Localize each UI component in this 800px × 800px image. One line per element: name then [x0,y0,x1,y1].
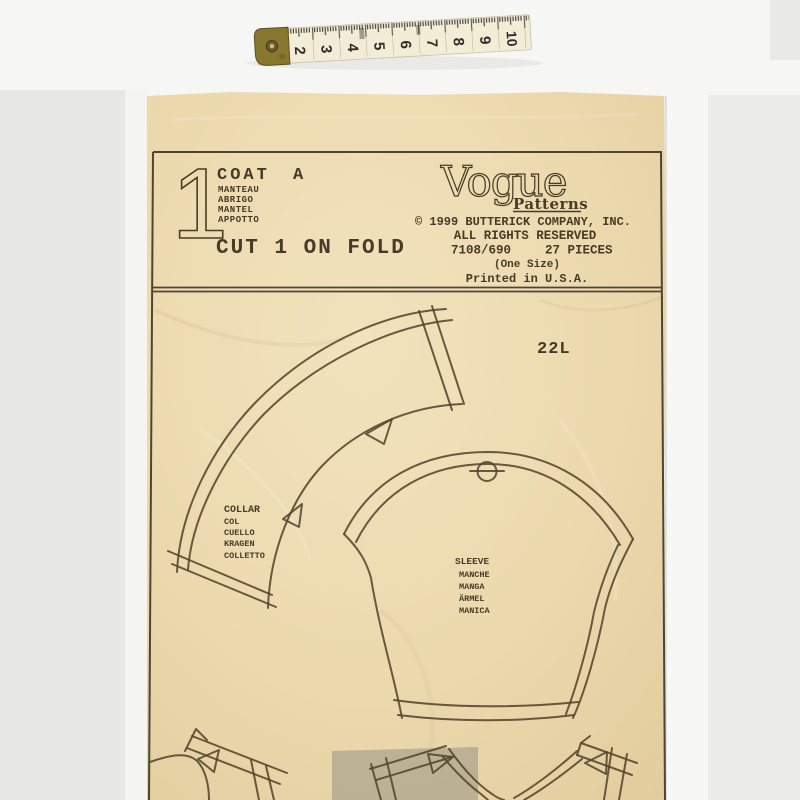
translation-it: APPOTTO [218,215,259,225]
backdrop-right-highlight [666,95,708,800]
collar-label-es: CUELLO [224,528,255,538]
collar-label-de: KRAGEN [224,539,255,549]
tape-number: 6 [397,40,414,49]
tape-number: 9 [476,36,493,45]
tape-print-smudge-1 [359,28,365,39]
translation-de: MANTEL [218,205,253,215]
translation-es: ABRIGO [218,195,254,205]
brand-sub-logo: Patterns [513,195,588,213]
photo-stage: 2 3 4 5 6 7 8 9 10 [0,0,800,800]
garment-translations: MANTEAU ABRIGO MANTEL APPOTTO [218,185,259,225]
tape-number: 10 [504,31,521,48]
vintage-sewing-pattern-photo: 2 3 4 5 6 7 8 9 10 [0,0,800,800]
collar-label-it: COLLETTO [224,551,265,561]
sleeve-label-en: SLEEVE [455,556,490,567]
printed-line: Printed in U.S.A. [466,272,588,286]
photo-shadow-patch [332,747,478,800]
tape-number: 4 [344,43,361,53]
backdrop-left-band [0,90,125,800]
tape-number: 7 [423,39,440,48]
copyright-line: © 1999 BUTTERICK COMPANY, INC. [415,215,631,229]
sleeve-label-de: ÄRMEL [459,593,485,604]
sheet-code: 22L [537,340,571,359]
backdrop-right-band [708,95,800,800]
backdrop-left-highlight [125,90,148,800]
pattern-number: 7108/690 [451,244,511,258]
tape-print-smudge-2 [416,25,421,35]
tape-number: 8 [450,37,467,46]
sleeve-label-es: MANGA [459,582,485,592]
tape-number: 5 [370,42,387,51]
tape-number: 3 [317,44,334,53]
pieces-count: 27 PIECES [545,244,613,258]
garment-label: COAT [217,166,270,185]
backdrop-top-right-shade [770,0,800,60]
size-line: (One Size) [494,259,560,271]
tape-number: 2 [291,46,308,55]
collar-label-en: COLLAR [224,505,260,516]
sleeve-label-fr: MANCHE [459,570,490,580]
rights-line: ALL RIGHTS RESERVED [454,229,597,243]
view-letter: A [293,166,304,185]
sleeve-label-it: MANICA [459,606,491,616]
translation-fr: MANTEAU [218,185,259,195]
cutting-instruction: CUT 1 ON FOLD [216,237,406,260]
collar-label-fr: COL [224,517,239,527]
